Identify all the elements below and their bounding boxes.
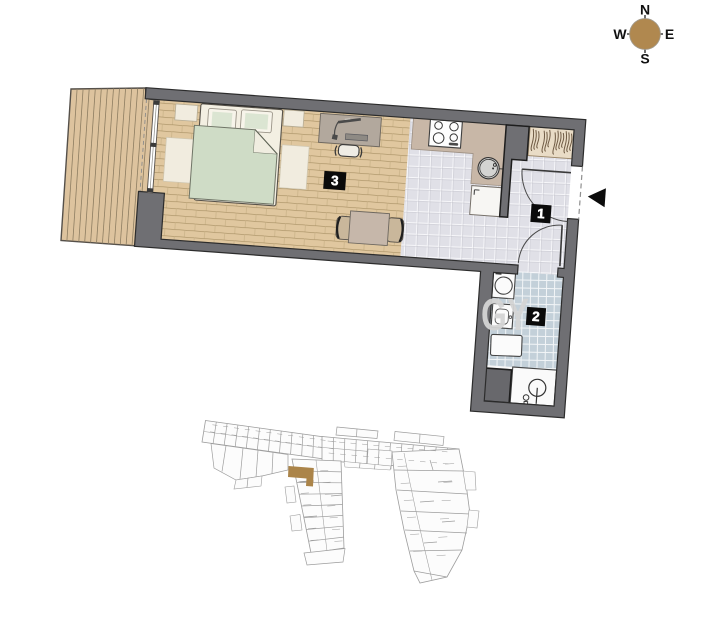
svg-text:N: N <box>640 2 650 18</box>
svg-text:GY: GY <box>481 290 529 340</box>
svg-text:W: W <box>613 26 627 42</box>
svg-text:E: E <box>665 26 674 42</box>
svg-text:S: S <box>640 51 649 67</box>
svg-text:2: 2 <box>532 309 541 325</box>
